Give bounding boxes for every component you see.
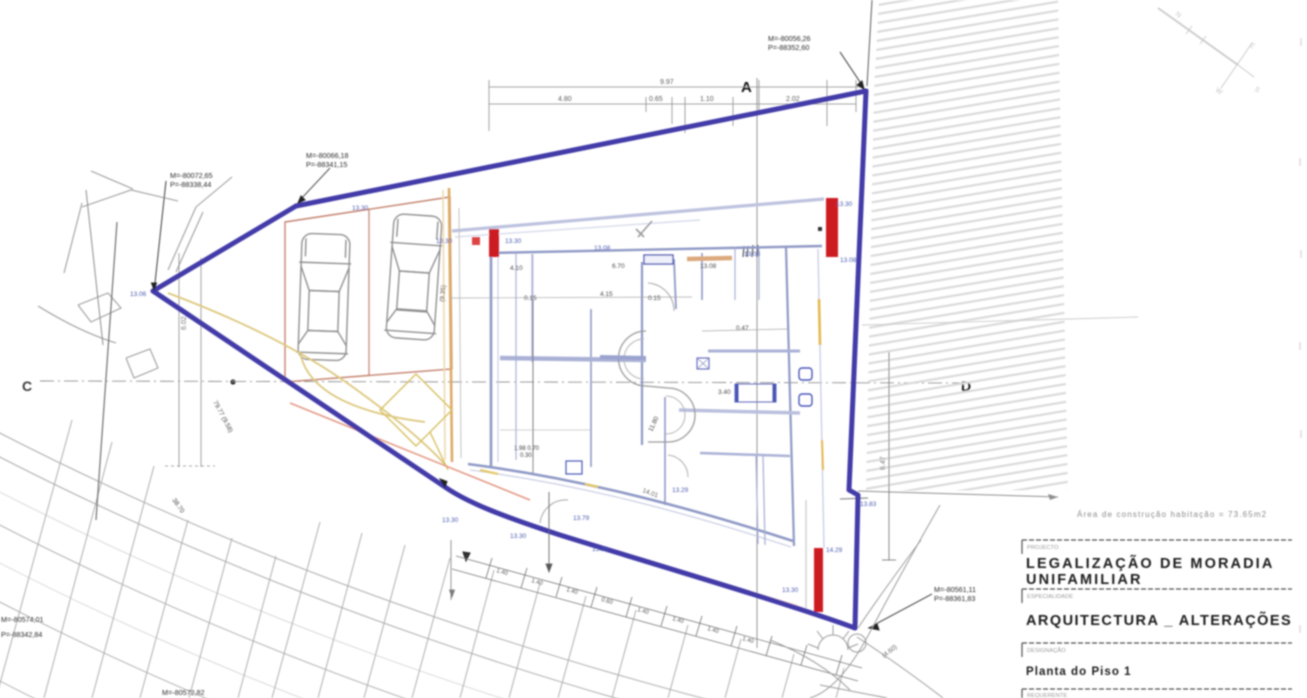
svg-text:14.29: 14.29 [826, 547, 843, 554]
svg-text:13.30: 13.30 [436, 238, 453, 245]
svg-text:13.79: 13.79 [573, 515, 590, 522]
svg-text:P=-88361,83: P=-88361,83 [934, 594, 975, 603]
svg-text:13.30: 13.30 [510, 533, 527, 540]
svg-text:P=-88338,44: P=-88338,44 [170, 180, 211, 189]
svg-text:13.30: 13.30 [352, 205, 369, 212]
svg-text:13.10: 13.10 [592, 546, 609, 553]
svg-text:M=-80561,11: M=-80561,11 [934, 585, 976, 594]
svg-text:N: N [1174, 11, 1182, 20]
svg-text:13.30: 13.30 [782, 587, 799, 594]
svg-text:6.02: 6.02 [181, 316, 188, 330]
svg-text:A: A [741, 79, 752, 96]
svg-text:11.80: 11.80 [647, 415, 660, 433]
svg-text:4.15: 4.15 [600, 291, 613, 298]
svg-text:REQUERENTE: REQUERENTE [1027, 693, 1067, 698]
svg-text:0.30: 0.30 [520, 453, 532, 459]
svg-text:0.15: 0.15 [648, 295, 661, 302]
svg-text:0.15: 0.15 [524, 295, 537, 302]
svg-text:ARQUITECTURA _ ALTERAÇÕES: ARQUITECTURA _ ALTERAÇÕES [1026, 611, 1292, 629]
svg-text:LEGALIZAÇÃO DE MORADIA: LEGALIZAÇÃO DE MORADIA [1026, 554, 1274, 572]
svg-text:6.70: 6.70 [612, 263, 625, 270]
svg-text:P=-88352,60: P=-88352,60 [768, 43, 809, 52]
svg-text:P=-88342,84: P=-88342,84 [1, 630, 42, 639]
svg-text:1.40: 1.40 [565, 587, 579, 596]
svg-text:M=-80056,26: M=-80056,26 [768, 34, 811, 43]
svg-text:4.10: 4.10 [510, 265, 523, 272]
svg-text:2.02: 2.02 [786, 96, 800, 103]
svg-text:1.40: 1.40 [671, 616, 685, 625]
svg-text:DESIGNAÇÃO: DESIGNAÇÃO [1027, 647, 1066, 654]
svg-text:38.70: 38.70 [170, 497, 185, 515]
svg-text:13.30: 13.30 [836, 201, 853, 208]
svg-text:3.40: 3.40 [718, 389, 731, 396]
svg-text:4.80: 4.80 [558, 96, 572, 103]
svg-text:S: S [1253, 86, 1261, 95]
svg-text:1.40: 1.40 [495, 568, 509, 577]
svg-text:13.08: 13.08 [594, 245, 611, 252]
svg-text:C: C [22, 378, 32, 394]
svg-text:M=-80572,82: M=-80572,82 [162, 688, 205, 697]
svg-text:Área de construção habitação: Área de construção habitação = 73.65m2 [1077, 510, 1267, 519]
svg-text:13.30: 13.30 [505, 238, 522, 245]
svg-text:ESPECIALIDADE: ESPECIALIDADE [1027, 594, 1073, 600]
svg-text:Planta do Piso 1: Planta do Piso 1 [1026, 666, 1132, 678]
svg-text:UNIFAMILIAR: UNIFAMILIAR [1026, 572, 1143, 588]
svg-text:6.47: 6.47 [880, 456, 887, 470]
svg-text:13.08: 13.08 [700, 263, 717, 270]
svg-text:13.83: 13.83 [860, 501, 877, 508]
svg-text:1.40: 1.40 [636, 607, 650, 616]
svg-text:0.60: 0.60 [600, 597, 614, 606]
svg-text:1.10: 1.10 [700, 96, 714, 103]
svg-text:M=-80066,18: M=-80066,18 [306, 151, 349, 160]
svg-text:P=-88341,15: P=-88341,15 [306, 160, 347, 169]
svg-text:PROJECTO: PROJECTO [1027, 545, 1059, 551]
svg-text:1.40: 1.40 [706, 626, 720, 635]
svg-text:79.77 (9.58): 79.77 (9.58) [211, 400, 234, 434]
svg-text:13.08: 13.08 [744, 251, 761, 258]
svg-text:M=-80574,01: M=-80574,01 [1, 615, 44, 624]
svg-text:E: E [1248, 42, 1256, 51]
svg-text:(9.35): (9.35) [439, 285, 447, 303]
svg-text:(4.60): (4.60) [881, 644, 899, 660]
svg-text:0.65: 0.65 [649, 96, 663, 103]
svg-text:13.06: 13.06 [130, 291, 147, 298]
svg-text:W: W [1214, 87, 1224, 97]
svg-text:0.47: 0.47 [736, 325, 749, 332]
svg-text:13.08: 13.08 [840, 257, 857, 264]
svg-text:9.97: 9.97 [660, 79, 674, 86]
svg-text:13.30: 13.30 [442, 517, 459, 524]
svg-text:M=-80072,65: M=-80072,65 [170, 171, 213, 180]
svg-text:1.98 0.70: 1.98 0.70 [514, 446, 540, 452]
svg-text:13.29: 13.29 [672, 487, 689, 494]
